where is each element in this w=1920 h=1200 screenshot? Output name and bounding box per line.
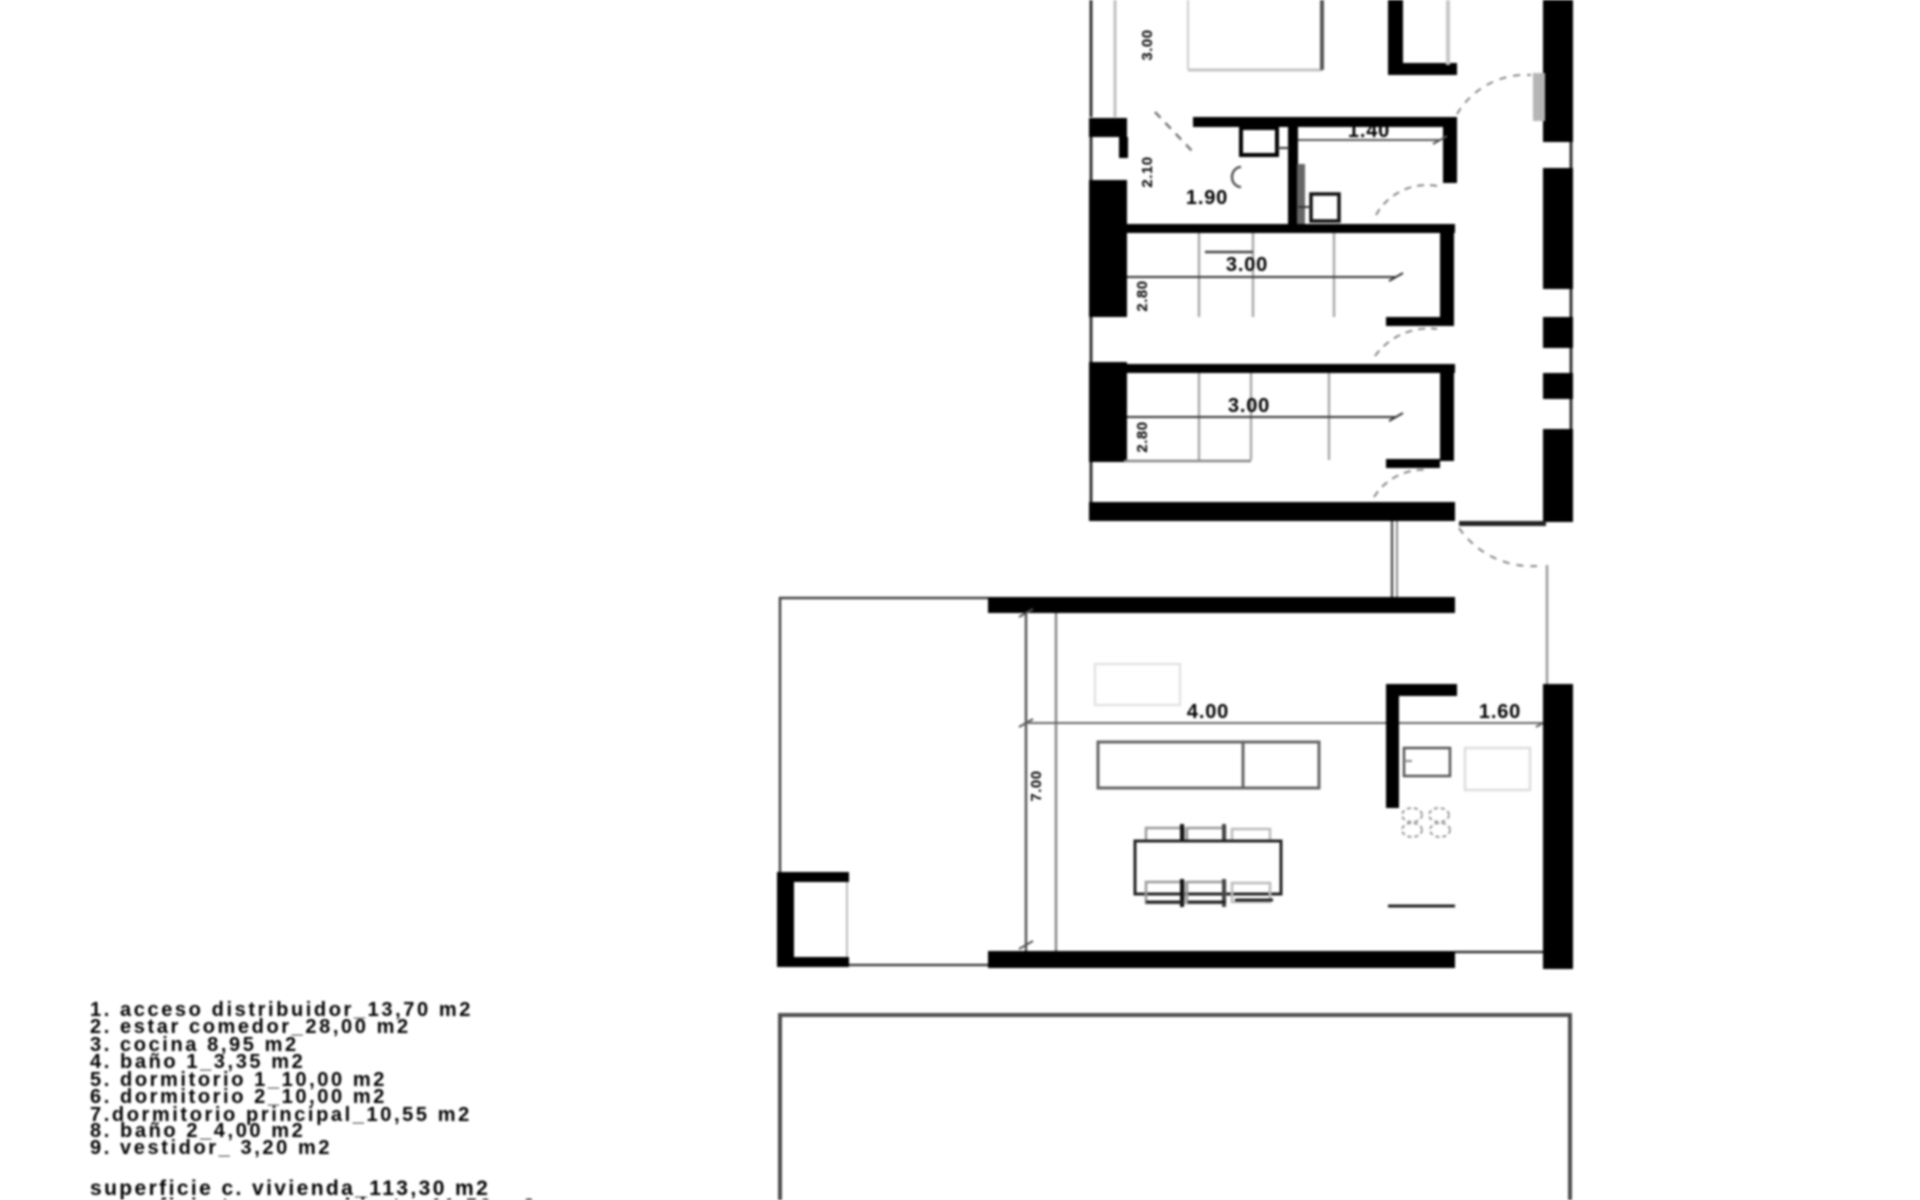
svg-text:3.00: 3.00 (1139, 29, 1156, 60)
svg-text:1.40: 1.40 (1348, 120, 1390, 142)
svg-text:superficie terraza cubierta_11: superficie terraza cubierta_11,50 m2 (90, 1195, 537, 1200)
svg-text:7.00: 7.00 (1028, 770, 1045, 801)
svg-text:4.00: 4.00 (1187, 701, 1229, 723)
svg-text:3.00: 3.00 (1228, 395, 1270, 417)
svg-text:9. vestidor_ 3,20 m2: 9. vestidor_ 3,20 m2 (90, 1137, 332, 1159)
svg-text:1.90: 1.90 (1186, 187, 1228, 209)
svg-text:2.10: 2.10 (1139, 156, 1156, 187)
svg-text:1.60: 1.60 (1479, 701, 1521, 723)
svg-text:2.80: 2.80 (1134, 421, 1151, 452)
svg-text:2.80: 2.80 (1134, 280, 1151, 311)
svg-text:3.00: 3.00 (1226, 254, 1268, 276)
